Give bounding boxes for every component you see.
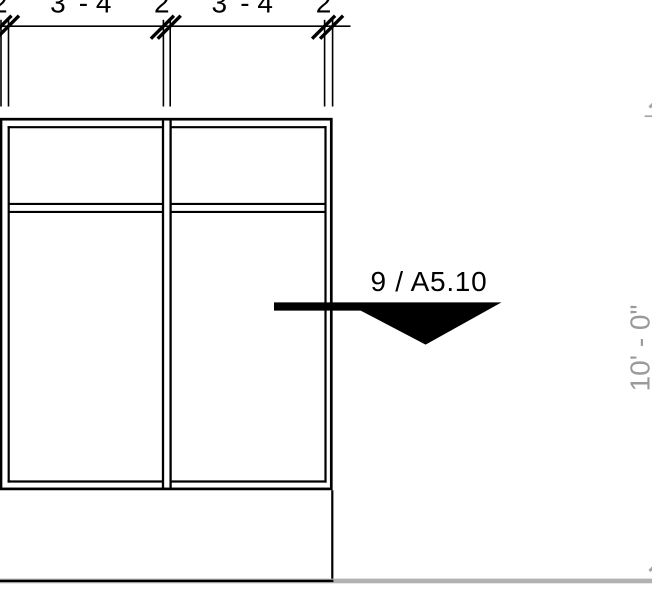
svg-text:3' - 4": 3' - 4"	[50, 0, 121, 19]
svg-text:2": 2"	[316, 0, 342, 19]
svg-text:10' - 0": 10' - 0"	[625, 305, 652, 392]
svg-text:9 / A5.10: 9 / A5.10	[371, 266, 488, 297]
svg-text:2": 2"	[0, 0, 18, 19]
svg-text:3' - 4": 3' - 4"	[212, 0, 283, 19]
svg-text:2": 2"	[154, 0, 180, 19]
